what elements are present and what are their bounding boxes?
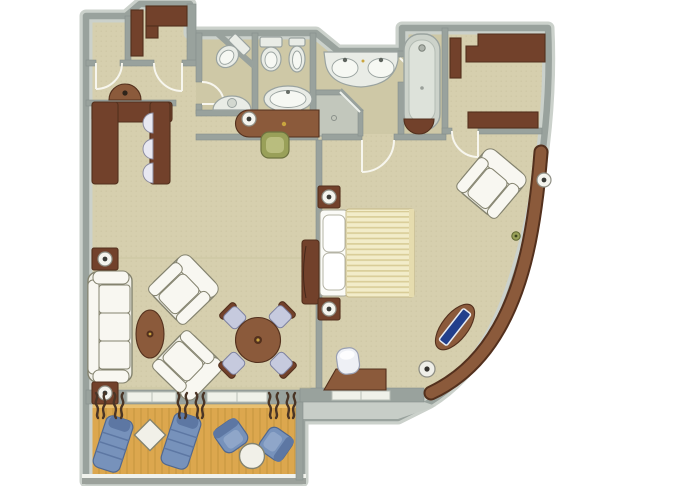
- railing-sill: [82, 474, 306, 478]
- round-stool: [419, 361, 435, 377]
- tv-cabinet: [302, 240, 319, 304]
- tub-left-wall-b: [398, 82, 404, 134]
- balcony-right-wall: [296, 402, 303, 480]
- tub-left-wall-a: [398, 51, 404, 57]
- counter-lamp: [537, 173, 551, 187]
- bed: [320, 209, 414, 297]
- oval-coffee-table: [136, 310, 164, 358]
- console-ornament: [122, 90, 127, 95]
- nightstand-lamp: [322, 190, 336, 204]
- bar-stools: [143, 113, 153, 183]
- duvet-foot: [409, 209, 414, 297]
- nightstand-top: [318, 186, 340, 208]
- dressing-bottom-wall-b: [478, 128, 542, 134]
- balcony-railing: [82, 478, 306, 484]
- sink-pedestal: [228, 99, 237, 108]
- desk-chair: [261, 132, 289, 158]
- tub-drain: [420, 86, 424, 90]
- dressing-wardrobe-top: [466, 34, 545, 62]
- powder-room-left-wall-a: [196, 33, 202, 82]
- nightstand-bottom: [318, 298, 340, 320]
- desk-accessory: [282, 122, 286, 126]
- curtain-strand: [96, 393, 98, 418]
- floor-plan-canvas: [0, 0, 680, 486]
- bedroom-top-wall-a: [322, 134, 362, 140]
- bathtub: [404, 34, 440, 130]
- front-closet-wardrobe-leg: [146, 26, 158, 38]
- vanity-stool: [335, 347, 360, 376]
- pillow-bottom: [323, 253, 345, 290]
- desk-lamp: [242, 112, 256, 126]
- front-closet-wardrobe-side: [131, 10, 143, 56]
- tub-closet-wall: [442, 28, 448, 134]
- end-table-top: [92, 248, 118, 270]
- dressing-wardrobe-bottom: [468, 112, 538, 128]
- closet-divider-wall: [125, 16, 131, 62]
- tub-faucet: [419, 45, 425, 51]
- shower-right-wall: [358, 110, 363, 136]
- bedroom-top-wall-b: [394, 134, 446, 140]
- bidet: [289, 38, 305, 72]
- pillow-top: [323, 215, 345, 252]
- corridor-top-wall-c: [182, 60, 198, 66]
- corridor-top-wall-a: [86, 60, 96, 66]
- dressing-bottom-wall-a: [442, 128, 452, 134]
- wc-divider-wall: [252, 33, 258, 114]
- front-closet-right-wall: [187, 4, 196, 62]
- faucet-right: [379, 58, 383, 62]
- table-lamp: [98, 252, 112, 266]
- round-deck-table: [240, 444, 265, 469]
- oval-sink-console: [264, 86, 312, 112]
- front-closet-wardrobe-top: [146, 6, 187, 26]
- faucet-left: [343, 58, 347, 62]
- suite-floor-plan: [0, 0, 680, 486]
- shower-top-wall: [316, 90, 342, 95]
- corridor-top-wall-b: [120, 60, 154, 66]
- dressing-wardrobe-left: [450, 38, 461, 78]
- wc-toilet: [260, 37, 282, 71]
- nightstand-lamp: [322, 302, 336, 316]
- sofa: [88, 271, 132, 383]
